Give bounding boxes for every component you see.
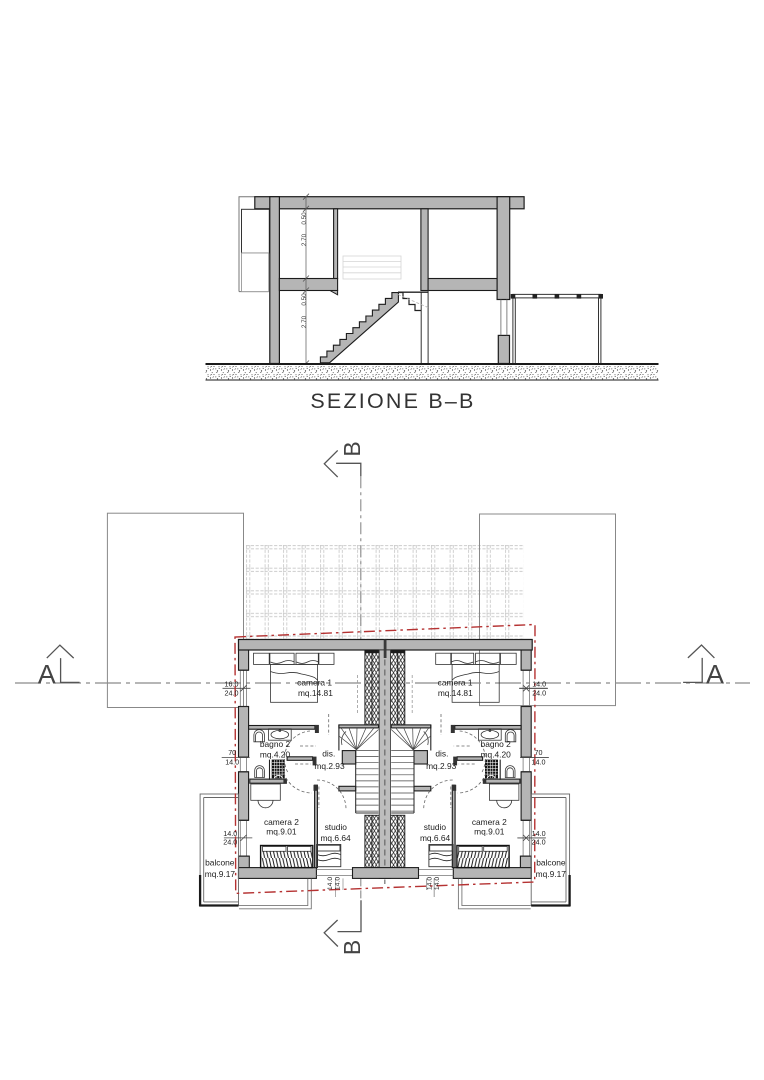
svg-text:balcone: balcone bbox=[536, 857, 566, 867]
svg-text:B: B bbox=[339, 940, 365, 955]
svg-text:mq.2.93: mq.2.93 bbox=[426, 761, 457, 771]
svg-text:B: B bbox=[339, 441, 365, 456]
svg-text:camera 2: camera 2 bbox=[264, 817, 299, 827]
svg-text:mq.2.93: mq.2.93 bbox=[314, 761, 345, 771]
svg-text:14.0: 14.0 bbox=[532, 758, 546, 767]
svg-text:2.70: 2.70 bbox=[301, 233, 308, 246]
svg-text:24.0: 24.0 bbox=[225, 688, 239, 697]
svg-text:SEZIONE B–B: SEZIONE B–B bbox=[310, 389, 475, 413]
svg-text:camera 1: camera 1 bbox=[438, 677, 473, 687]
svg-text:mq.14.81: mq.14.81 bbox=[298, 688, 333, 698]
svg-text:mq.6.64: mq.6.64 bbox=[320, 833, 351, 843]
svg-text:bagno 2: bagno 2 bbox=[260, 739, 291, 749]
svg-text:balcone: balcone bbox=[205, 857, 235, 867]
svg-text:mq.14.81: mq.14.81 bbox=[438, 688, 473, 698]
svg-text:14.0: 14.0 bbox=[532, 680, 546, 689]
svg-text:16.0: 16.0 bbox=[225, 680, 239, 689]
svg-text:mq.9.01: mq.9.01 bbox=[266, 826, 297, 836]
svg-text:mq.4.20: mq.4.20 bbox=[260, 749, 291, 759]
svg-text:mq.4.20: mq.4.20 bbox=[481, 749, 512, 759]
svg-text:70: 70 bbox=[535, 748, 543, 757]
svg-text:14.0: 14.0 bbox=[225, 758, 239, 767]
svg-text:mq.9.01: mq.9.01 bbox=[474, 826, 505, 836]
svg-text:0.50: 0.50 bbox=[301, 212, 308, 225]
svg-text:mq.9.17: mq.9.17 bbox=[205, 869, 236, 879]
svg-text:dis.: dis. bbox=[435, 749, 448, 759]
svg-text:studio: studio bbox=[325, 822, 348, 832]
svg-text:24.0: 24.0 bbox=[532, 688, 546, 697]
svg-text:dis.: dis. bbox=[322, 749, 335, 759]
svg-text:14.0: 14.0 bbox=[434, 877, 441, 890]
svg-text:14.0: 14.0 bbox=[327, 877, 334, 890]
svg-text:camera 1: camera 1 bbox=[297, 677, 332, 687]
svg-text:A: A bbox=[38, 659, 56, 689]
svg-text:24.0: 24.0 bbox=[532, 837, 546, 846]
svg-text:bagno 2: bagno 2 bbox=[481, 739, 512, 749]
svg-text:mq.9.17: mq.9.17 bbox=[536, 869, 567, 879]
svg-text:2.70: 2.70 bbox=[301, 315, 308, 328]
svg-text:14.0: 14.0 bbox=[334, 877, 341, 890]
svg-text:studio: studio bbox=[424, 822, 447, 832]
svg-text:70: 70 bbox=[228, 748, 236, 757]
svg-text:24.0: 24.0 bbox=[223, 837, 237, 846]
svg-text:0.50: 0.50 bbox=[301, 293, 308, 306]
svg-text:mq.6.64: mq.6.64 bbox=[420, 833, 451, 843]
svg-text:A: A bbox=[706, 659, 724, 689]
svg-text:camera 2: camera 2 bbox=[472, 817, 507, 827]
svg-text:14.0: 14.0 bbox=[426, 877, 433, 890]
